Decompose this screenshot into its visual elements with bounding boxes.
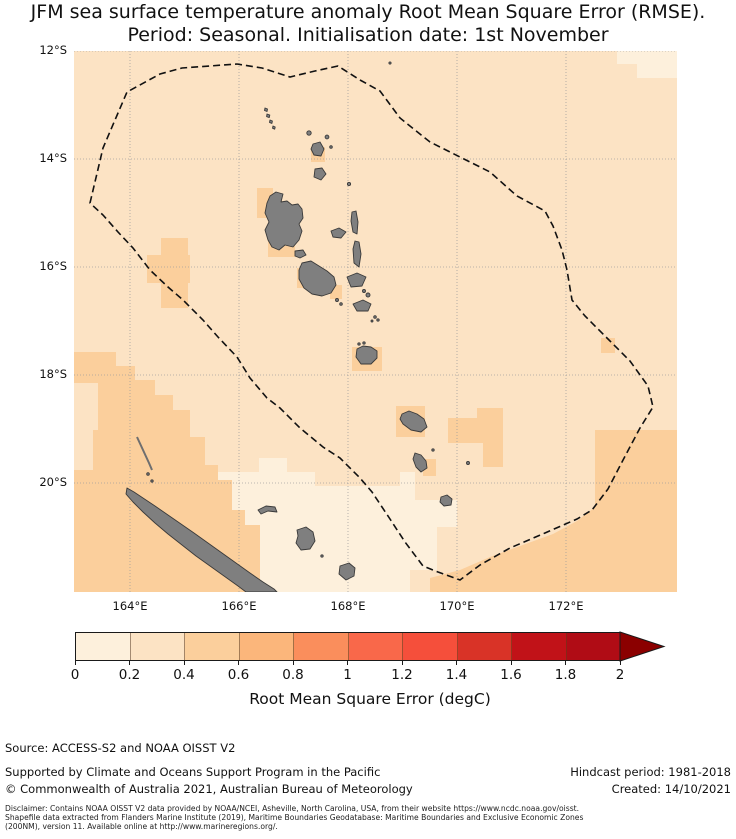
colorbar-overflow-arrow — [619, 631, 666, 662]
islet-shepherd-2 — [377, 319, 379, 321]
figure-title-line1: JFM sea surface temperature anomaly Root… — [31, 1, 706, 23]
island-paama — [363, 290, 366, 293]
lat-tick-label: 14°S — [0, 151, 67, 165]
islet-belep-2 — [151, 480, 153, 482]
island-ureparapara — [307, 131, 311, 135]
colorbar-segment — [131, 633, 186, 660]
created-date-text: Created: 14/10/2021 — [612, 782, 731, 796]
colorbar-tick-label: 0.8 — [271, 667, 315, 683]
islet-belep-1 — [147, 473, 150, 476]
island-mere-lava — [347, 182, 350, 185]
islet-nguna — [358, 343, 360, 345]
colorbar-tickmark — [293, 661, 294, 665]
rmse-cell-02-04 — [74, 383, 98, 430]
colorbar-tick-label: 0.6 — [217, 667, 261, 683]
island-lopevi — [366, 293, 370, 297]
lat-tick-label: 16°S — [0, 259, 67, 273]
colorbar-tickmark — [347, 661, 348, 665]
hindcast-period-text: Hindcast period: 1981-2018 — [570, 765, 731, 779]
island-efate — [356, 346, 377, 364]
colorbar-tickmark — [184, 661, 185, 665]
figure-root: JFM sea surface temperature anomaly Root… — [0, 0, 736, 839]
island-mota — [330, 146, 333, 149]
copyright-text: © Commonwealth of Australia 2021, Austra… — [5, 782, 413, 796]
colorbar-tick-label: 1.6 — [489, 667, 533, 683]
lat-tick-label: 18°S — [0, 367, 67, 381]
colorbar-segment — [294, 633, 349, 660]
colorbar-segment — [567, 633, 622, 660]
colorbar-segment — [403, 633, 458, 660]
colorbar-tick-label: 0 — [53, 667, 97, 683]
island-tiga — [321, 555, 323, 557]
colorbar-tickmark — [456, 661, 457, 665]
colorbar-label: Root Mean Square Error (degC) — [0, 690, 736, 708]
colorbar-segment — [458, 633, 513, 660]
colorbar-segment — [512, 633, 567, 660]
colorbar-tick-label: 0.2 — [108, 667, 152, 683]
colorbar-tickmark — [620, 661, 621, 665]
colorbar-tickmark — [511, 661, 512, 665]
islet-se-malekula-1 — [336, 299, 339, 302]
colorbar-tick-label: 1.8 — [544, 667, 588, 683]
source-text: Source: ACCESS-S2 and NOAA OISST V2 — [5, 741, 235, 755]
disclaimer-line3: (200NM), version 11. Available online at… — [5, 822, 278, 831]
colorbar-tickmark — [565, 661, 566, 665]
lat-tick-label: 20°S — [0, 475, 67, 489]
island-aniwa — [432, 449, 434, 451]
islet-emao — [363, 342, 365, 344]
lon-tick-label: 166°E — [207, 599, 271, 613]
lon-tick-label: 172°E — [534, 599, 598, 613]
islet-shepherd-3 — [371, 320, 373, 322]
colorbar-tickmark — [238, 661, 239, 665]
figure-title-line2: Period: Seasonal. Initialisation date: 1… — [127, 24, 608, 46]
disclaimer-line2: Shapefile data extracted from Flanders M… — [5, 813, 583, 822]
island-pentecost — [353, 241, 361, 267]
colorbar-tick-label: 1 — [326, 667, 370, 683]
colorbar-segment — [240, 633, 295, 660]
rmse-cell-0-02 — [617, 51, 677, 64]
colorbar-tick-label: 0.4 — [162, 667, 206, 683]
colorbar-tick-label: 2 — [598, 667, 642, 683]
colorbar-segment — [76, 633, 131, 660]
colorbar-tickmark — [75, 661, 76, 665]
rmse-cell-04-06 — [601, 338, 615, 353]
island-futuna — [467, 462, 470, 465]
lon-tick-label: 170°E — [425, 599, 489, 613]
colorbar — [75, 632, 620, 661]
lon-tick-label: 164°E — [98, 599, 162, 613]
disclaimer-line1: Disclaimer: Contains NOAA OISST V2 data … — [5, 804, 579, 813]
island-mota-lava — [325, 135, 329, 139]
rmse-cell-0-02 — [637, 64, 677, 78]
islet-north — [389, 62, 391, 64]
colorbar-tick-label: 1.4 — [435, 667, 479, 683]
colorbar-segment — [185, 633, 240, 660]
supported-by-text: Supported by Climate and Oceans Support … — [5, 765, 380, 779]
colorbar-tickmark — [402, 661, 403, 665]
lat-tick-label: 12°S — [0, 43, 67, 57]
islet-shepherd-1 — [374, 316, 377, 319]
colorbar-segment — [349, 633, 404, 660]
map-canvas — [74, 51, 677, 592]
lon-tick-label: 168°E — [316, 599, 380, 613]
rmse-cell-02-04 — [74, 430, 93, 470]
colorbar-tickmark — [129, 661, 130, 665]
colorbar-tick-label: 1.2 — [380, 667, 424, 683]
islet-se-malekula-2 — [340, 303, 343, 306]
